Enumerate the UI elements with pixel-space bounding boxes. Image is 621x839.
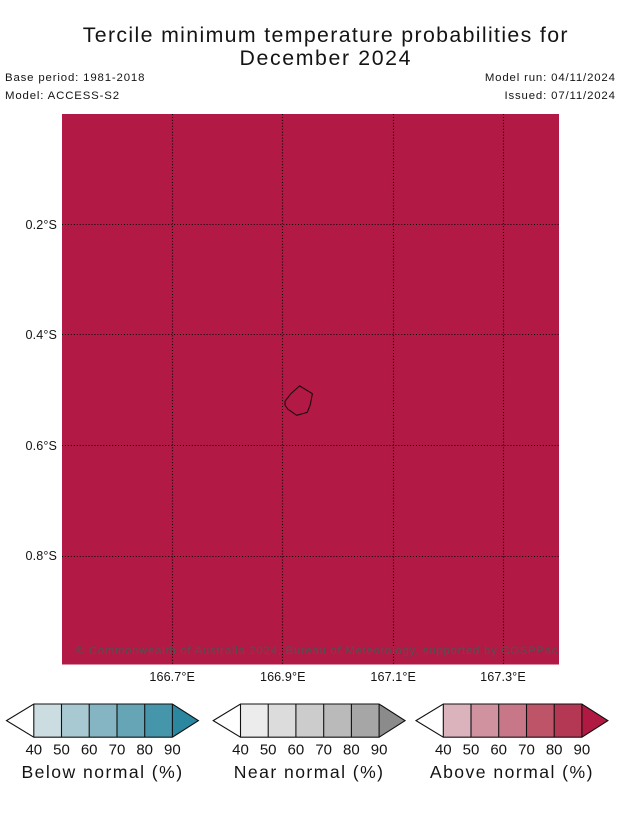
svg-text:80: 80 — [546, 742, 563, 759]
svg-text:90: 90 — [164, 742, 181, 759]
svg-text:50: 50 — [260, 742, 277, 759]
svg-text:Below normal (%): Below normal (%) — [21, 762, 183, 782]
svg-text:50: 50 — [463, 742, 480, 759]
svg-text:Near normal (%): Near normal (%) — [234, 762, 385, 782]
svg-text:90: 90 — [371, 742, 388, 759]
svg-text:70: 70 — [109, 742, 126, 759]
svg-text:90: 90 — [574, 742, 591, 759]
svg-text:70: 70 — [315, 742, 332, 759]
svg-text:50: 50 — [53, 742, 70, 759]
svg-text:70: 70 — [518, 742, 535, 759]
svg-text:80: 80 — [343, 742, 360, 759]
svg-text:60: 60 — [288, 742, 305, 759]
svg-text:80: 80 — [136, 742, 153, 759]
svg-text:60: 60 — [490, 742, 507, 759]
svg-text:40: 40 — [435, 742, 452, 759]
svg-text:© Commonwealth of Australia 20: © Commonwealth of Australia 2024, Bureau… — [76, 645, 558, 657]
svg-text:Above normal (%): Above normal (%) — [430, 762, 594, 782]
svg-text:40: 40 — [25, 742, 42, 759]
svg-text:60: 60 — [81, 742, 98, 759]
svg-text:40: 40 — [232, 742, 249, 759]
